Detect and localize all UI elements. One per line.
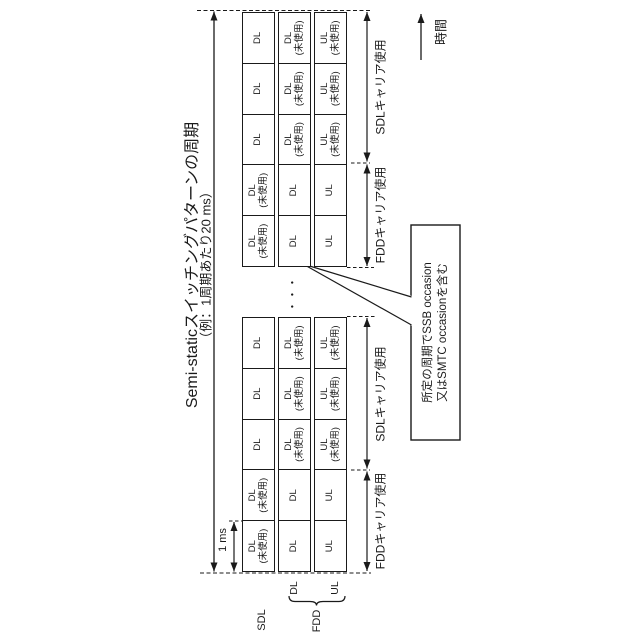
slot-cell: UL (未使用) [315, 115, 346, 166]
period-title-line2: （例：1周期あたり20 ms） [196, 185, 215, 345]
slot-cell: DL [243, 369, 274, 420]
slot-cell: DL (未使用) [279, 115, 310, 166]
fdd-carrier-usage-label-group2: FDDキャリア使用 [372, 167, 389, 264]
slot-cell: DL [243, 64, 274, 115]
time-axis-label: 時間 [431, 19, 450, 45]
slot-cell: DL (未使用) [279, 369, 310, 420]
fdd-ul-row-label: UL [329, 581, 341, 594]
slot-cell: DL (未使用) [279, 318, 310, 369]
slot-cell: UL [315, 521, 346, 571]
figure-canvas: Semi-staticスイッチングパターンの周期 （例：1周期あたり20 ms）… [0, 0, 640, 640]
slot-cell: DL (未使用) [243, 521, 274, 571]
slot-cell: DL [279, 521, 310, 571]
slot-cell: DL (未使用) [279, 13, 310, 64]
slot-cell: DL [243, 13, 274, 64]
fdd-carrier-usage-label-group1: FDDキャリア使用 [372, 473, 389, 570]
sdl-row-label: SDL [256, 609, 268, 630]
slot-cell: UL (未使用) [315, 420, 346, 471]
slot-cell: DL [243, 115, 274, 166]
slot-cell: DL [243, 420, 274, 471]
callout-text-line2: 又はSMTC occasionを含む [436, 263, 450, 402]
slot-cell: UL [315, 216, 346, 266]
sdl-carrier-usage-label-group2: SDLキャリア使用 [372, 39, 389, 134]
slot-cell: DL (未使用) [243, 470, 274, 521]
fdd-brace [289, 596, 345, 606]
fdd-group-label: FDD [311, 610, 323, 633]
rotated-diagram: Semi-staticスイッチングパターンの周期 （例：1周期あたり20 ms）… [0, 0, 640, 640]
slot-row-fdd-ul-group2: UL UL UL (未使用) UL (未使用) UL (未使用) [314, 12, 347, 267]
callout-text-line1: 所定の周期でSSB occasion [421, 262, 435, 403]
slot-cell: DL (未使用) [279, 64, 310, 115]
slot-row-fdd-ul-group1: UL UL UL (未使用) UL (未使用) UL (未使用) [314, 317, 347, 572]
slot-cell: DL [279, 165, 310, 216]
callout-text: 所定の周期でSSB occasion 又はSMTC occasionを含む [413, 227, 458, 438]
slot-cell: DL [243, 318, 274, 369]
ellipsis: ・・・ [284, 276, 300, 312]
slot-cell: DL (未使用) [243, 216, 274, 266]
slot-cell-ssb-target: DL [279, 216, 310, 266]
slot-cell: UL (未使用) [315, 13, 346, 64]
slot-row-fdd-dl-group1: DL DL DL (未使用) DL (未使用) DL (未使用) [278, 317, 311, 572]
slot-cell: UL [315, 165, 346, 216]
slot-cell: DL [279, 470, 310, 521]
sdl-carrier-usage-label-group1: SDLキャリア使用 [372, 346, 389, 441]
slot-cell: UL (未使用) [315, 64, 346, 115]
slot-duration-label: 1 ms [217, 528, 229, 552]
fdd-dl-row-label: DL [288, 581, 300, 594]
slot-row-sdl-group1: DL (未使用) DL (未使用) DL DL DL [242, 317, 275, 572]
slot-row-sdl-group2: DL (未使用) DL (未使用) DL DL DL [242, 12, 275, 267]
slot-cell: UL (未使用) [315, 318, 346, 369]
slot-cell: UL [315, 470, 346, 521]
slot-cell: DL (未使用) [243, 165, 274, 216]
slot-cell: UL (未使用) [315, 369, 346, 420]
slot-cell: DL (未使用) [279, 420, 310, 471]
slot-row-fdd-dl-group2: DL DL DL (未使用) DL (未使用) DL (未使用) [278, 12, 311, 267]
